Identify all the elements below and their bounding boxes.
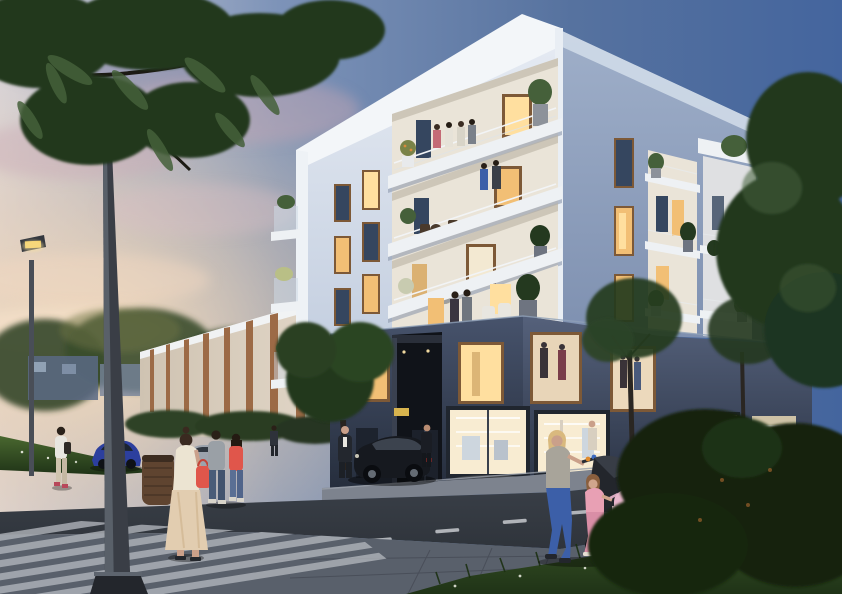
balcony-plant	[400, 208, 416, 224]
wooden-litter-bin	[142, 455, 174, 505]
dusk-rendering	[0, 0, 842, 594]
coral-bag	[196, 466, 211, 488]
entrance-sign	[394, 408, 409, 416]
rendering-canvas	[0, 0, 842, 594]
